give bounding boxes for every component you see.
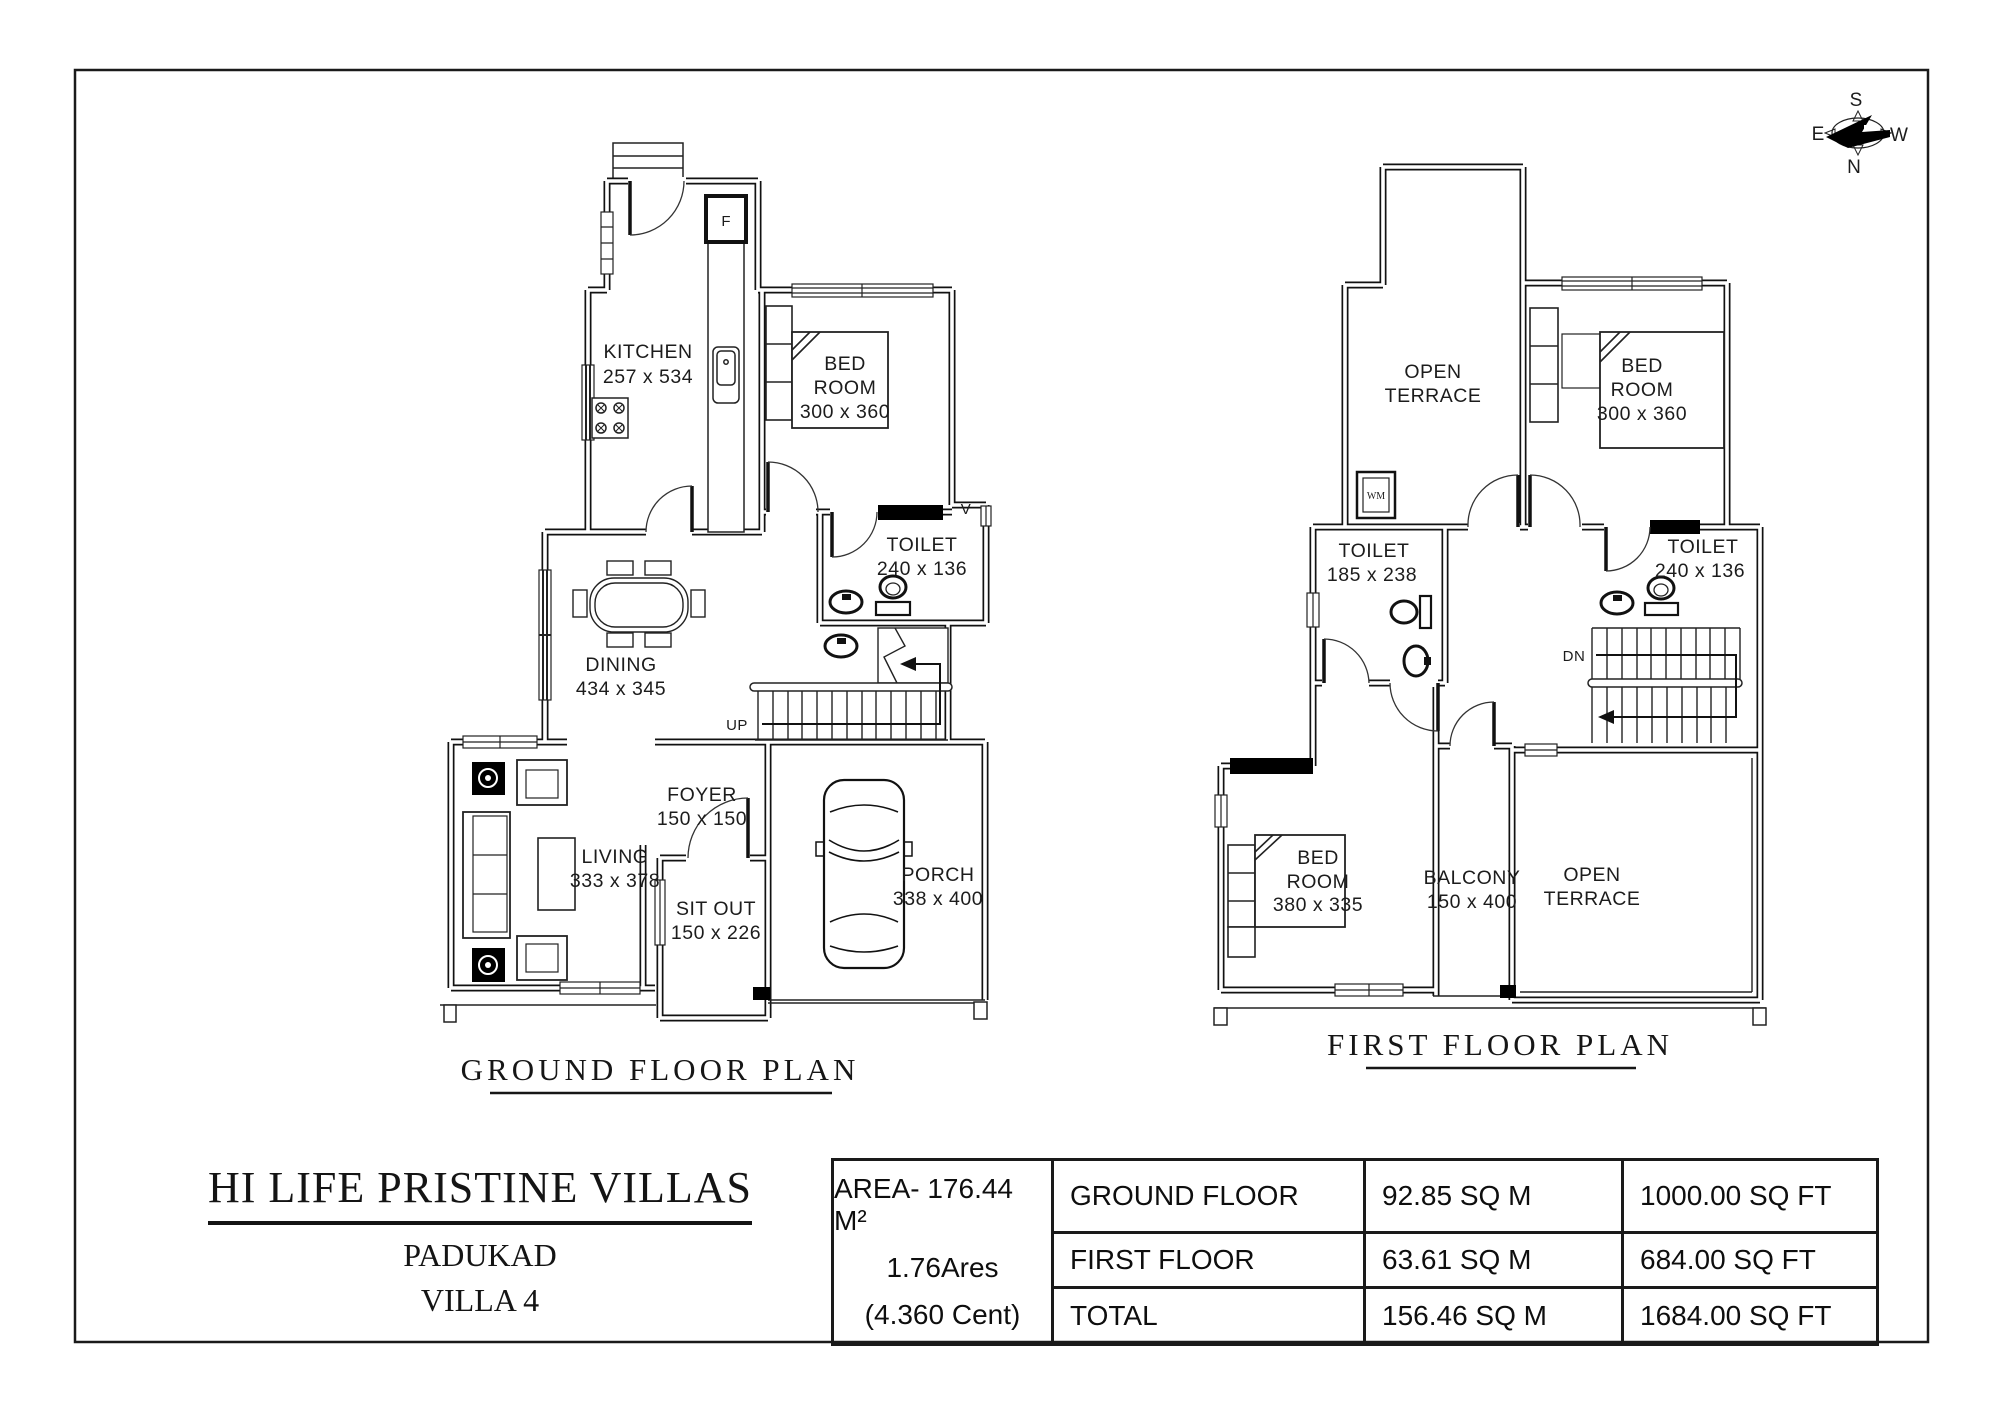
- room-label-ff-toilet2: TOILET: [1668, 536, 1739, 558]
- sofa: [463, 812, 510, 938]
- room-label-dining: DINING: [585, 654, 656, 676]
- room-dims-living: 333 x 378: [570, 870, 660, 892]
- table-row-sqm: 63.61 SQ M: [1363, 1231, 1621, 1286]
- room-dims-sitout: 150 x 226: [671, 922, 761, 944]
- room-label-ff-bedroom1: BED: [1621, 355, 1663, 377]
- living-furniture: [463, 760, 575, 982]
- room-label-terrace-bottom2: TERRACE: [1544, 888, 1641, 910]
- stairs-dn-label: DN: [1563, 648, 1586, 665]
- gf-door-openings: [628, 177, 879, 862]
- room-label-living: LIVING: [582, 846, 649, 868]
- table-row-sqft: 1000.00 SQ FT: [1621, 1161, 1876, 1231]
- speaker: [472, 948, 505, 982]
- title-block: HI LIFE PRISTINE VILLAS PADUKAD VILLA 4: [140, 1162, 820, 1319]
- room-label-terrace-bottom: OPEN: [1563, 864, 1620, 886]
- table-row-label: FIRST FLOOR: [1051, 1231, 1363, 1286]
- room-label-bedroom2: ROOM: [814, 377, 877, 399]
- company-name: HI LIFE PRISTINE VILLAS: [208, 1162, 752, 1225]
- fridge: F: [706, 196, 746, 242]
- floor-plan-sheet: F: [0, 0, 2001, 1414]
- page-border: [75, 70, 1928, 1342]
- room-label-ff-bedroom2: BED: [1297, 847, 1339, 869]
- room-dims-kitchen: 257 x 534: [603, 366, 693, 388]
- table-row-sqm: 92.85 SQ M: [1363, 1161, 1621, 1231]
- table-row-label: GROUND FLOOR: [1051, 1161, 1363, 1231]
- compass-n: N: [1847, 157, 1861, 178]
- gf-plan-title: GROUND FLOOR PLAN: [461, 1052, 860, 1087]
- compass-e: E: [1812, 124, 1825, 145]
- room-label-terrace-top: OPEN: [1404, 361, 1461, 383]
- room-dims-ff-toilet1: 185 x 238: [1327, 564, 1417, 586]
- villa-number: VILLA 4: [140, 1282, 820, 1319]
- area-cent: (4.360 Cent): [865, 1299, 1021, 1331]
- ff-bed1: [1530, 308, 1724, 448]
- room-dims-foyer: 150 x 150: [657, 808, 747, 830]
- armchair: [517, 936, 567, 980]
- room-label-terrace-top2: TERRACE: [1385, 385, 1482, 407]
- area-table: AREA- 176.44 M² 1.76Ares (4.360 Cent) GR…: [831, 1158, 1879, 1346]
- project-location: PADUKAD: [140, 1237, 820, 1274]
- ff-stairs: [1588, 628, 1742, 743]
- hall-wash-basin: [825, 635, 857, 657]
- stairs-up-label: UP: [726, 717, 748, 734]
- first-floor-plan: WM: [1214, 167, 1766, 1068]
- stove: [592, 398, 628, 438]
- area-summary-cell: AREA- 176.44 M² 1.76Ares (4.360 Cent): [834, 1161, 1051, 1343]
- room-label-balcony: BALCONY: [1424, 867, 1521, 889]
- dining-table: [573, 561, 705, 647]
- area-total-m2: AREA- 176.44 M²: [834, 1173, 1051, 1237]
- toilet-wc: [1391, 601, 1417, 623]
- room-dims-ff-bedroom1: 300 x 360: [1597, 403, 1687, 425]
- vent-label: V: [961, 501, 972, 518]
- compass-rose-icon: S E W N: [1812, 90, 1908, 178]
- table-row-sqm: 156.46 SQ M: [1363, 1286, 1621, 1343]
- back-steps: [613, 143, 683, 181]
- armchair: [517, 760, 567, 805]
- ff-plan-title: FIRST FLOOR PLAN: [1327, 1027, 1673, 1062]
- gf-toilet-fixtures: [830, 576, 910, 615]
- gf-doors: [630, 181, 877, 858]
- washing-machine: WM: [1357, 472, 1395, 518]
- car: [816, 780, 912, 968]
- table-row-sqft: 684.00 SQ FT: [1621, 1231, 1876, 1286]
- gf-step-block: [753, 987, 770, 1000]
- ff-shaft: [1650, 520, 1700, 534]
- ff-toilet1-fixtures: [1391, 596, 1431, 676]
- room-label-bedroom: BED: [824, 353, 866, 375]
- ff-toilet2-fixtures: [1601, 577, 1678, 615]
- compass-w: W: [1890, 125, 1908, 146]
- room-label-ff-bedroom1b: ROOM: [1611, 379, 1674, 401]
- table-row-label: TOTAL: [1051, 1286, 1363, 1343]
- room-label-porch: PORCH: [902, 864, 975, 886]
- room-dims-balcony: 150 x 400: [1427, 891, 1517, 913]
- ff-plinth: [1214, 1008, 1766, 1025]
- table-row-sqft: 1684.00 SQ FT: [1621, 1286, 1876, 1343]
- ground-floor-plan: F: [440, 143, 991, 1093]
- wm-label: WM: [1367, 491, 1385, 502]
- room-dims-porch: 338 x 400: [893, 888, 983, 910]
- compass-s: S: [1850, 90, 1863, 111]
- gf-shaft: [878, 505, 943, 520]
- room-dims-toilet: 240 x 136: [877, 558, 967, 580]
- room-label-toilet: TOILET: [887, 534, 958, 556]
- area-ares: 1.76Ares: [886, 1252, 998, 1284]
- room-label-ff-bedroom2b: ROOM: [1287, 871, 1350, 893]
- room-dims-dining: 434 x 345: [576, 678, 666, 700]
- kitchen-counter: [708, 242, 744, 532]
- fridge-label: F: [721, 213, 730, 230]
- ff-step-block: [1500, 985, 1516, 998]
- room-dims-bedroom: 300 x 360: [800, 401, 890, 423]
- room-label-ff-toilet1: TOILET: [1339, 540, 1410, 562]
- room-label-sitout: SIT OUT: [676, 898, 756, 920]
- room-dims-ff-toilet2: 240 x 136: [1655, 560, 1745, 582]
- room-dims-ff-bedroom2: 380 x 335: [1273, 894, 1363, 916]
- speaker: [472, 762, 505, 795]
- ff-shaft2: [1230, 758, 1313, 774]
- room-label-kitchen: KITCHEN: [603, 341, 692, 363]
- room-label-foyer: FOYER: [667, 784, 737, 806]
